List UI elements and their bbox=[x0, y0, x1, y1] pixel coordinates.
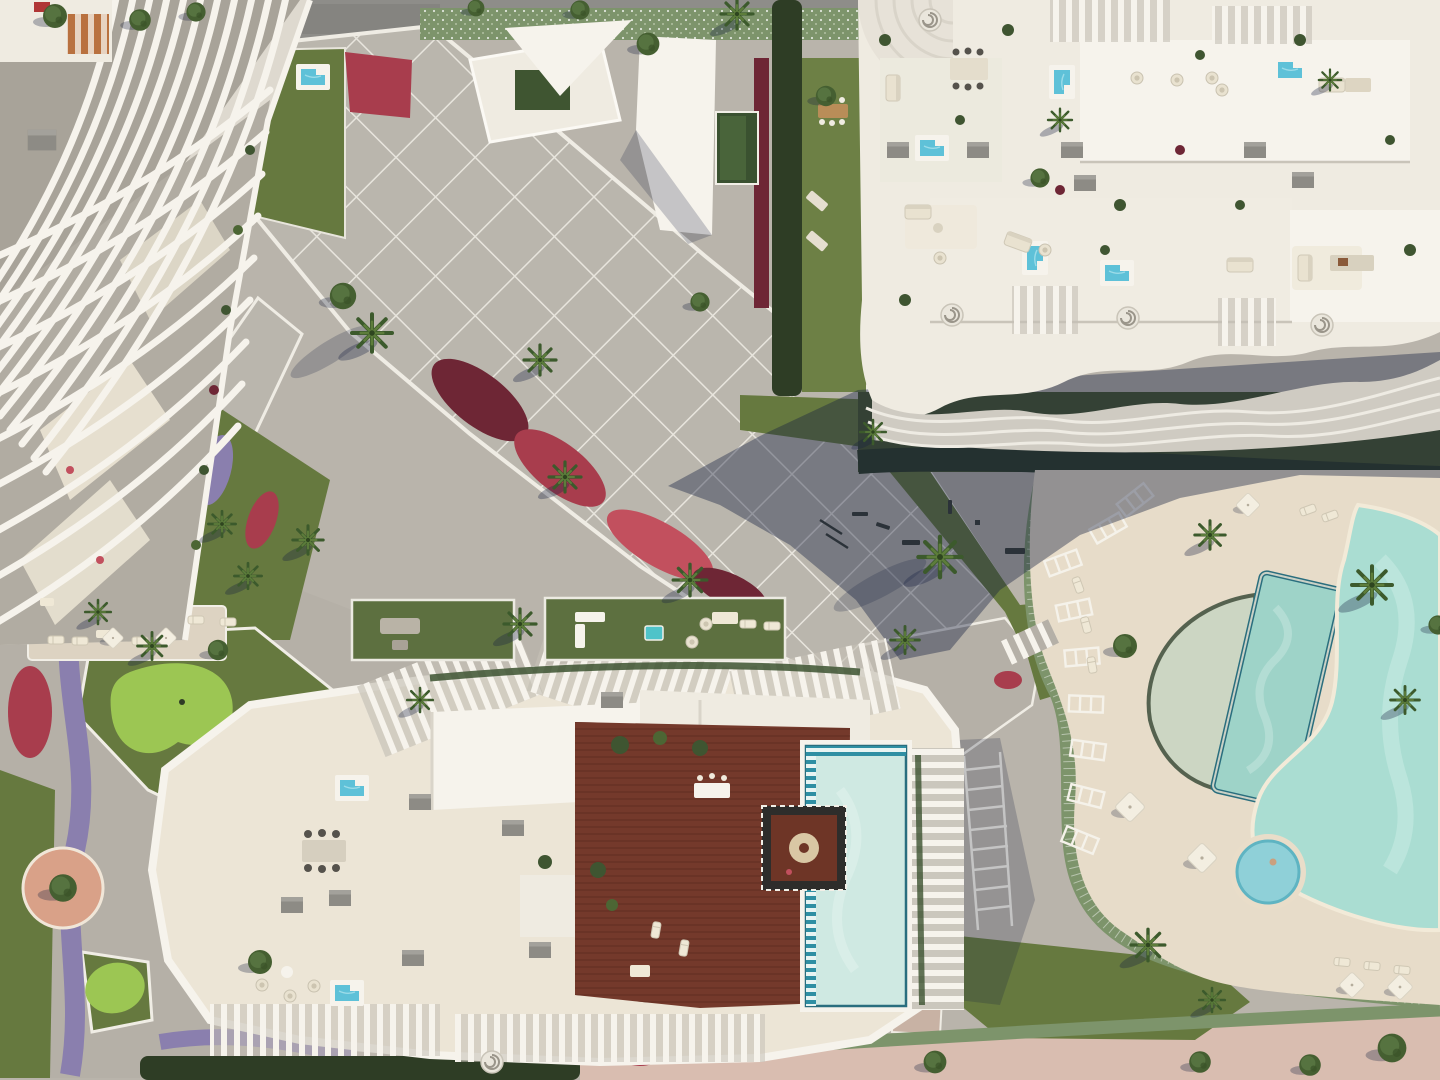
chair bbox=[308, 980, 320, 992]
chair bbox=[284, 990, 296, 1002]
minipool bbox=[915, 135, 949, 161]
lounger bbox=[188, 616, 204, 624]
planter bbox=[653, 731, 667, 745]
flowerbed bbox=[8, 666, 52, 758]
coffee-table bbox=[1345, 78, 1371, 92]
lounger bbox=[1394, 965, 1411, 974]
graybox bbox=[409, 794, 431, 810]
resort-aerial-scene bbox=[0, 0, 1440, 1080]
side-table bbox=[281, 966, 293, 978]
lounge-pad bbox=[712, 612, 738, 624]
lounger bbox=[764, 622, 780, 630]
chair bbox=[1131, 72, 1143, 84]
sofa bbox=[1298, 255, 1312, 281]
minipool bbox=[1100, 260, 1134, 286]
jacuzzi bbox=[1230, 834, 1306, 910]
graybox bbox=[601, 692, 623, 708]
golf-hole bbox=[179, 699, 185, 705]
flowerbed-red-top bbox=[345, 52, 412, 118]
lounger bbox=[1334, 957, 1351, 966]
deck-pavilion bbox=[762, 806, 846, 890]
lounger bbox=[740, 620, 756, 628]
aerial-render-stage bbox=[0, 0, 1440, 1080]
graybox bbox=[329, 890, 351, 906]
chair bbox=[934, 252, 946, 264]
chair bbox=[1171, 74, 1183, 86]
deck-dining-table bbox=[694, 783, 730, 798]
chair bbox=[686, 636, 698, 648]
dining-table bbox=[950, 58, 988, 80]
graybox bbox=[1292, 172, 1314, 188]
sofa bbox=[1227, 258, 1253, 272]
lounger bbox=[48, 636, 64, 644]
green-roof-decks bbox=[352, 598, 785, 660]
graybox bbox=[502, 820, 524, 836]
minipool bbox=[335, 775, 369, 801]
spiral bbox=[481, 1051, 503, 1073]
graybox bbox=[1074, 175, 1096, 191]
cushion bbox=[786, 869, 792, 875]
minipool bbox=[1049, 65, 1075, 99]
graybox bbox=[967, 142, 989, 158]
chair bbox=[700, 618, 712, 630]
chair bbox=[1206, 72, 1218, 84]
chair bbox=[1039, 244, 1051, 256]
sofa bbox=[905, 205, 931, 219]
roof-dining-table bbox=[302, 840, 346, 862]
flowerbed bbox=[994, 671, 1022, 689]
graybox bbox=[887, 142, 909, 158]
hedge-vertical bbox=[772, 0, 802, 396]
outdoor-sofa bbox=[575, 612, 605, 622]
outdoor-kitchen bbox=[1330, 255, 1374, 271]
planter bbox=[692, 740, 708, 756]
planter bbox=[538, 855, 552, 869]
graybox bbox=[28, 130, 57, 151]
lounger bbox=[220, 618, 236, 626]
outdoor-sofa bbox=[380, 618, 420, 634]
sofa bbox=[886, 75, 900, 101]
spiral bbox=[1311, 314, 1333, 336]
minipool bbox=[296, 64, 330, 90]
orange-pergola bbox=[67, 14, 109, 54]
roof-hedge bbox=[918, 755, 922, 1005]
graybox bbox=[1061, 142, 1083, 158]
spiral bbox=[1117, 307, 1139, 329]
graybox bbox=[1244, 142, 1266, 158]
planter bbox=[606, 899, 618, 911]
bougainvillea-band bbox=[68, 600, 81, 1075]
chair bbox=[1216, 84, 1228, 96]
spiral bbox=[919, 9, 941, 31]
minipool bbox=[330, 980, 364, 1006]
green-pavilion bbox=[716, 112, 758, 184]
graybox bbox=[281, 897, 303, 913]
graybox bbox=[402, 950, 424, 966]
lounger bbox=[1364, 961, 1381, 970]
spa-tub bbox=[645, 626, 663, 640]
graybox bbox=[529, 942, 551, 958]
lounger bbox=[72, 637, 88, 645]
minipool bbox=[1273, 57, 1307, 83]
chair bbox=[256, 979, 268, 991]
planter bbox=[590, 862, 606, 878]
planter bbox=[611, 736, 629, 754]
spiral bbox=[941, 304, 963, 326]
bather bbox=[1270, 859, 1277, 866]
deck-table bbox=[630, 965, 650, 977]
